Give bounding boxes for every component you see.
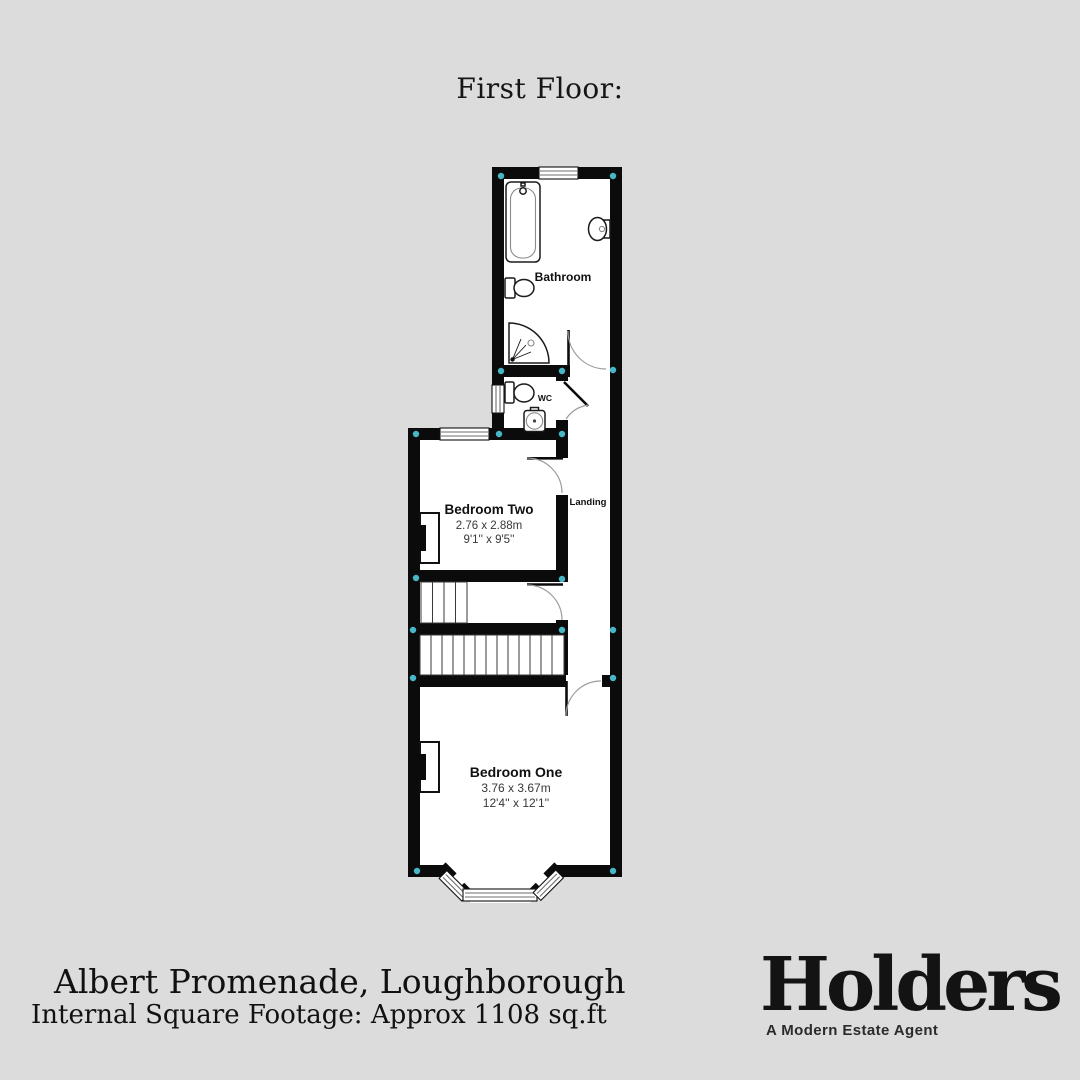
brand-tagline: A Modern Estate Agent [766, 1022, 938, 1039]
wc-window [492, 385, 504, 413]
bedroom-two-label: Bedroom Two [445, 502, 534, 517]
bathroom-basin [589, 218, 611, 241]
wc-toilet [505, 382, 534, 403]
bedroom-one-dimensions-imperial: 12'4'' x 12'1'' [483, 796, 549, 810]
bedroom-two-dimensions-metric: 2.76 x 2.88m [456, 520, 522, 532]
address-line: Albert Promenade, Loughborough [54, 962, 625, 1001]
staircase-upper-flight [421, 582, 467, 623]
floorplan: Bathroom WC Landing Bedroom Two 2.76 x 2… [0, 0, 1080, 1080]
bedroom-one-dimensions-metric: 3.76 x 3.67m [481, 781, 550, 795]
bedroom-one-label: Bedroom One [470, 764, 563, 780]
wc-label: WC [538, 393, 552, 403]
wc-basin [524, 408, 545, 432]
brand-logo: Holders [760, 948, 1060, 1022]
bathtub [506, 182, 540, 262]
bathroom-label: Bathroom [535, 270, 592, 284]
staircase-main-flight [420, 635, 564, 675]
square-footage-line: Internal Square Footage: Approx 1108 sq.… [31, 1000, 607, 1030]
landing-label: Landing [570, 497, 607, 508]
bathroom-window [539, 167, 578, 179]
bedroom-two-dimensions-imperial: 9'1'' x 9'5'' [464, 534, 515, 546]
bathroom-toilet [505, 278, 534, 298]
bedroom-two-window [440, 428, 489, 440]
